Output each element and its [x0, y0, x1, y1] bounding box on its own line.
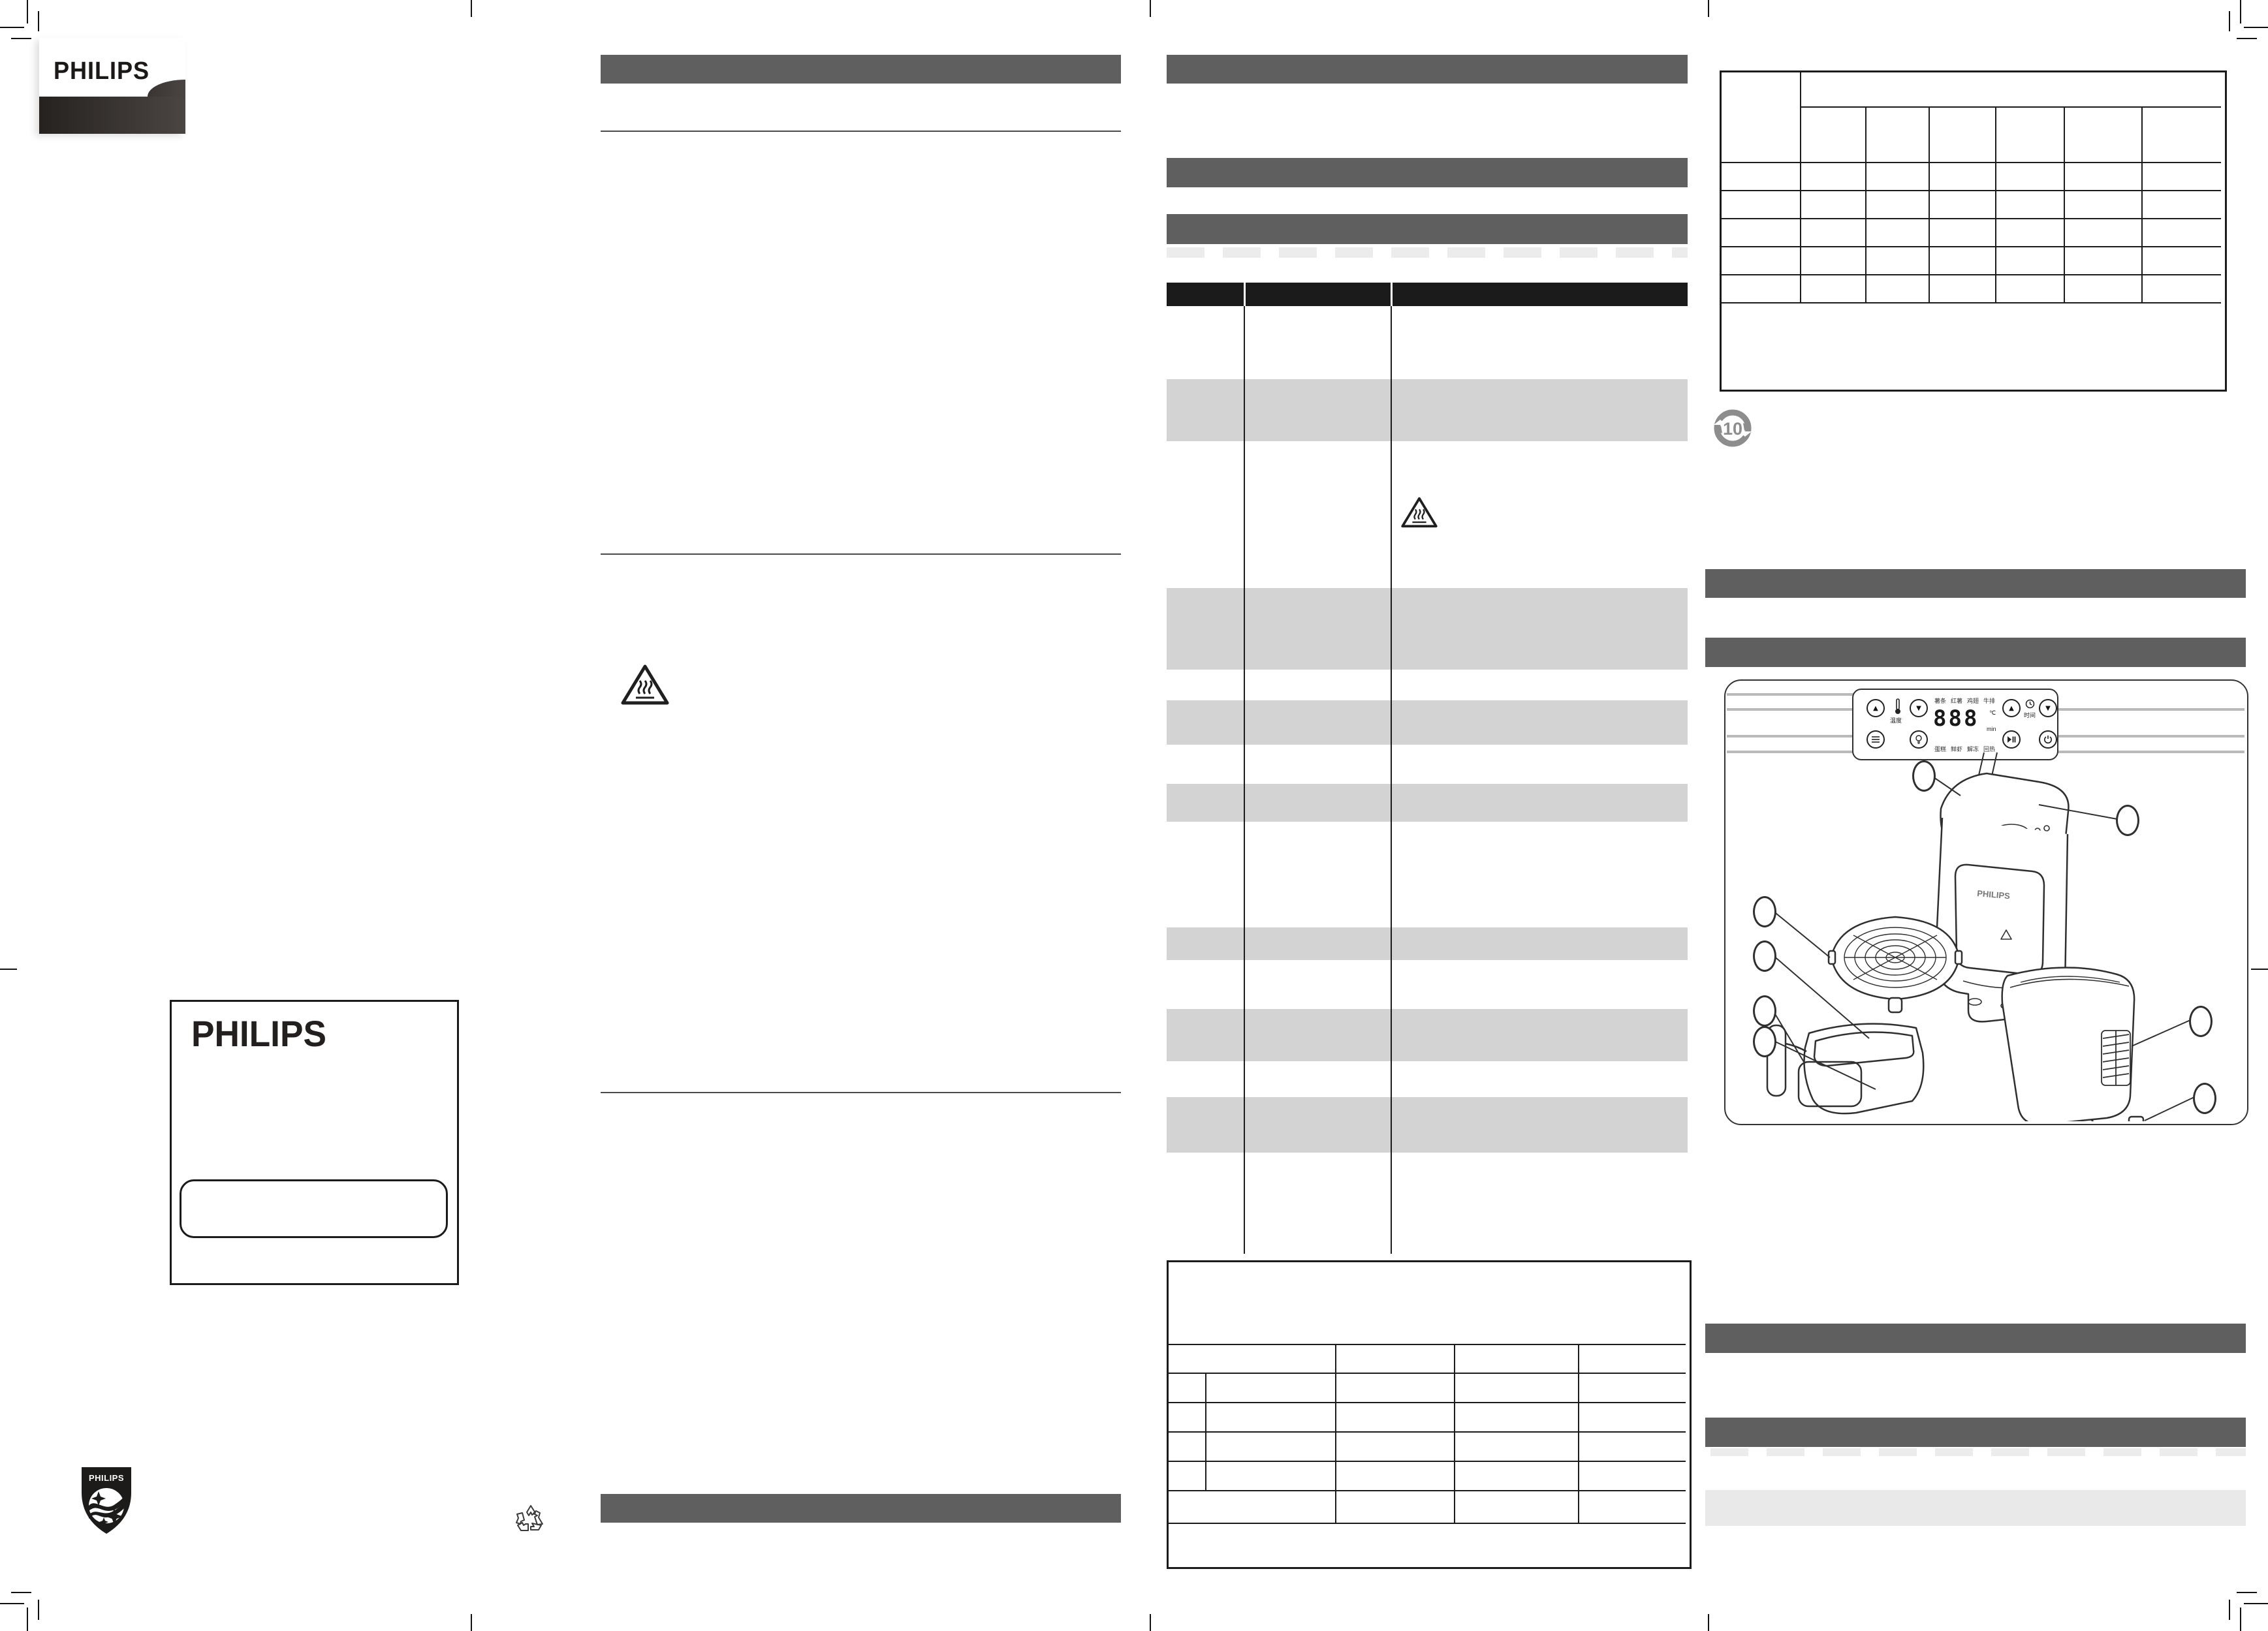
philips-shield-icon: PHILIPS: [77, 1464, 136, 1537]
callout-circle: [1753, 995, 1776, 1027]
hot-surface-warning-icon: [1400, 496, 1438, 529]
faint-text-row: [1710, 1448, 2246, 1456]
crop-mark: [2237, 38, 2257, 39]
faint-text-row: [1167, 247, 1688, 258]
section-bar: [1705, 1324, 2246, 1353]
section-bar: [1705, 1418, 2246, 1447]
crop-mark: [2244, 27, 2268, 28]
section-bar: [1705, 569, 2246, 598]
efup-10-recycling-icon: 10: [1712, 408, 1753, 448]
crop-mark: [2251, 969, 2268, 970]
crop-mark: [2240, 1608, 2241, 1631]
crop-mark: [1708, 0, 1709, 17]
section-bar: [1167, 55, 1688, 84]
crop-mark: [27, 1608, 28, 1631]
section-bar: [1167, 158, 1688, 187]
crop-mark: [1708, 1614, 1709, 1631]
crop-mark: [2240, 0, 2241, 23]
section-bar: [601, 1494, 1121, 1523]
crop-mark: [27, 0, 28, 23]
callout-circle: [2193, 1083, 2216, 1114]
section-bar: [1167, 214, 1688, 244]
crop-mark: [2229, 1600, 2230, 1620]
callout-circle: [1753, 940, 1776, 972]
crop-mark: [38, 1600, 39, 1620]
crop-mark: [1150, 1614, 1151, 1631]
section-bar: [601, 55, 1121, 84]
crop-mark: [471, 1614, 472, 1631]
airfryer-exploded-drawing: PHILIPS: [1725, 681, 2244, 1121]
callout-circle: [2116, 805, 2139, 836]
crop-mark: [2229, 11, 2230, 31]
product-overview-diagram: ▲ 温度 ▼ 薯条红薯鸡翅牛排 888 ℃ min: [1724, 679, 2248, 1125]
section-rule: [601, 553, 1121, 555]
section-rule: [601, 131, 1121, 132]
crop-mark: [11, 38, 31, 39]
svg-text:PHILIPS: PHILIPS: [89, 1473, 124, 1483]
logo-gradient-band: [39, 97, 185, 134]
table-header-row: [1167, 283, 1688, 306]
section-bar: [1705, 638, 2246, 667]
philips-wordmark: PHILIPS: [191, 1012, 326, 1055]
recycle-icon: [512, 1502, 548, 1534]
crop-mark: [38, 11, 39, 31]
warranty-table: [1167, 1260, 1692, 1569]
crop-mark: [471, 0, 472, 17]
section-bar-light: [1705, 1490, 2246, 1526]
model-name-slot: [180, 1179, 448, 1238]
manual-page: PHILIPS PHILIPS PHILIPS: [0, 0, 2268, 1631]
callout-circle: [2189, 1006, 2213, 1037]
crop-mark: [0, 27, 24, 28]
philips-wordmark: PHILIPS: [54, 57, 150, 85]
column-divider: [1244, 306, 1245, 1254]
spec-table: [1720, 70, 2227, 392]
front-cover-box: PHILIPS: [170, 1000, 459, 1285]
hot-surface-warning-icon: [620, 663, 670, 706]
callout-circle: [1753, 896, 1776, 927]
callout-circle: [1753, 1026, 1776, 1057]
efup-value: 10: [1723, 419, 1742, 439]
crop-mark: [0, 1603, 24, 1604]
crop-mark: [0, 969, 17, 970]
crop-mark: [1150, 0, 1151, 17]
philips-logo-card: PHILIPS: [39, 38, 185, 134]
column-divider: [1391, 306, 1392, 1254]
section-rule: [601, 1092, 1121, 1093]
crop-mark: [2237, 1592, 2257, 1593]
callout-circle: [1912, 760, 1936, 792]
crop-mark: [11, 1592, 31, 1593]
crop-mark: [2244, 1603, 2268, 1604]
